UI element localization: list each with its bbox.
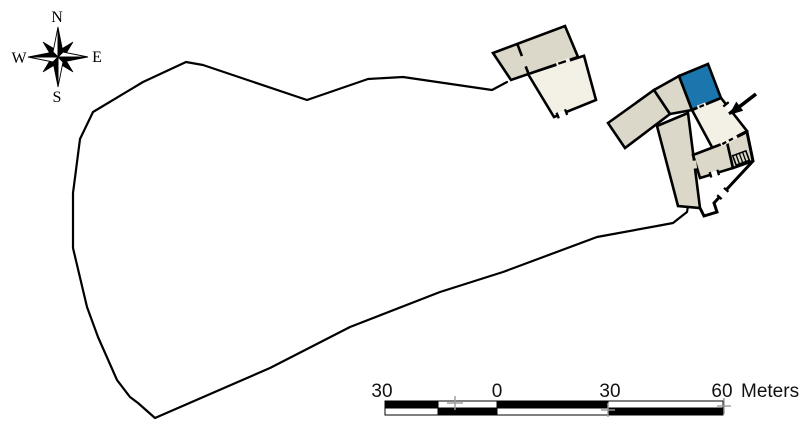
compass-point-s-white (58, 57, 63, 87)
scale-seg-top-3 (497, 401, 608, 408)
scale-seg-top-4 (608, 401, 723, 408)
entrance-arrow (729, 94, 756, 115)
arrow-shaft (740, 94, 757, 107)
scale-seg-top-1 (385, 401, 438, 408)
site-boundary (73, 62, 688, 418)
room-f-south-cap-2 (717, 170, 719, 175)
compass-label-west: W (11, 50, 27, 67)
scale-unit-label: Meters (741, 381, 799, 402)
site-plan: N E S W (0, 0, 800, 434)
compass-label-south: S (53, 89, 62, 106)
compass-label-east: E (92, 49, 102, 66)
compass-label-north: N (51, 9, 63, 26)
compass-point-e-white (58, 52, 88, 57)
scale-seg-bottom-3 (497, 408, 608, 415)
north-door-gap (558, 112, 566, 115)
north-building (493, 26, 596, 118)
room-f-south-cap-1 (710, 172, 712, 177)
main-building-complex (608, 64, 753, 216)
scale-label-60: 60 (711, 381, 732, 402)
wing-door-gap (694, 161, 695, 169)
scale-label-30-left: 30 (371, 381, 392, 402)
scale-seg-bottom-1 (385, 408, 438, 415)
room-f-south-gap (711, 173, 719, 175)
southeast-door-gap (719, 190, 726, 197)
compass-rose: N E S W (11, 9, 101, 106)
scale-seg-bottom-2 (438, 408, 497, 415)
site-plan-svg: N E S W (0, 0, 800, 434)
compass-point-w-white (28, 57, 58, 62)
scale-bar: 30 0 30 60 Meters (371, 381, 799, 417)
scale-label-30-right: 30 (599, 381, 620, 402)
scale-seg-bottom-4 (608, 408, 723, 415)
compass-point-w-black (28, 52, 58, 57)
scale-seg-top-2 (438, 401, 497, 408)
scale-label-0: 0 (492, 381, 503, 402)
